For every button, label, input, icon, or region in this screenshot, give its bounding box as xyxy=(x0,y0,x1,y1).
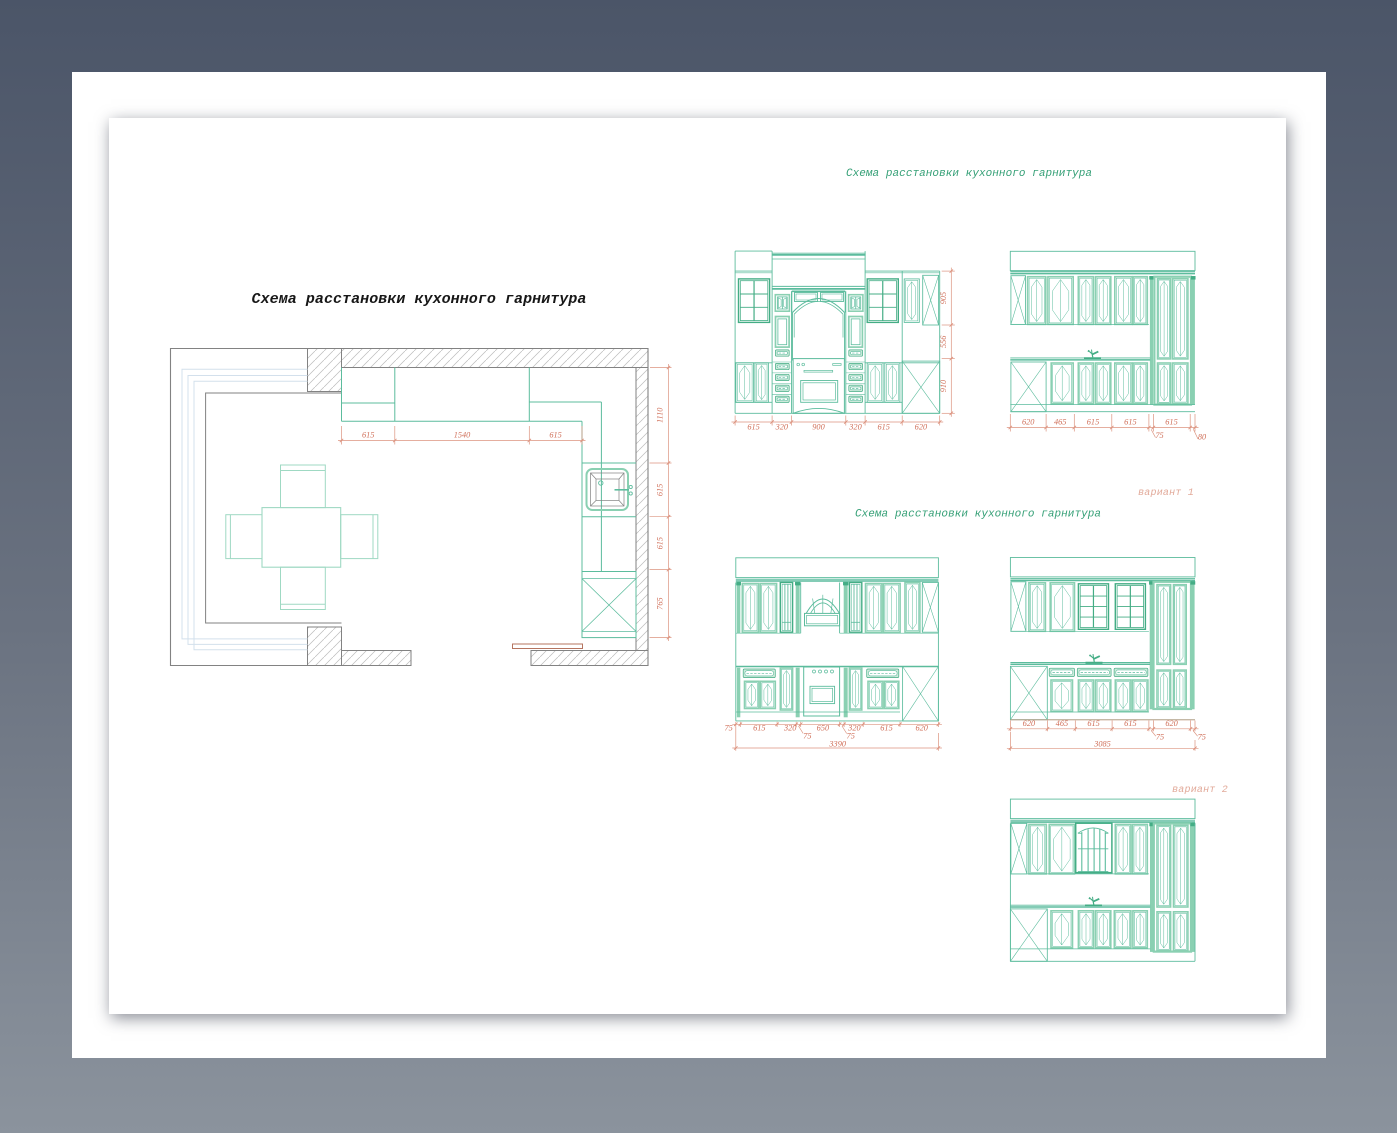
svg-text:615: 615 xyxy=(362,430,374,439)
svg-text:615: 615 xyxy=(880,723,892,732)
svg-text:75: 75 xyxy=(724,723,732,732)
svg-text:620: 620 xyxy=(915,422,928,431)
svg-text:650: 650 xyxy=(817,723,830,732)
svg-text:75: 75 xyxy=(1155,431,1163,440)
svg-text:75: 75 xyxy=(803,732,811,741)
svg-text:615: 615 xyxy=(656,537,665,549)
svg-text:1110: 1110 xyxy=(656,407,665,423)
svg-text:Схема расстановки кухонного га: Схема расстановки кухонного гарнитура xyxy=(855,509,1101,521)
svg-text:905: 905 xyxy=(939,292,948,304)
svg-text:вариант 2: вариант 2 xyxy=(1172,785,1228,796)
svg-text:900: 900 xyxy=(812,422,825,431)
svg-text:620: 620 xyxy=(1165,719,1178,728)
svg-text:75: 75 xyxy=(1156,732,1164,741)
svg-text:3390: 3390 xyxy=(828,740,846,749)
svg-text:80: 80 xyxy=(1198,432,1207,441)
svg-text:615: 615 xyxy=(1165,418,1177,427)
svg-text:465: 465 xyxy=(1056,719,1068,728)
svg-text:3085: 3085 xyxy=(1093,739,1111,748)
svg-text:556: 556 xyxy=(939,335,948,348)
svg-text:615: 615 xyxy=(1087,418,1099,427)
svg-text:1540: 1540 xyxy=(454,430,471,439)
svg-text:320: 320 xyxy=(848,422,862,431)
svg-text:615: 615 xyxy=(1124,719,1136,728)
svg-text:Схема расстановки кухонного га: Схема расстановки кухонного гарнитура xyxy=(846,168,1092,180)
svg-text:615: 615 xyxy=(877,422,889,431)
svg-text:765: 765 xyxy=(656,597,665,609)
svg-text:615: 615 xyxy=(1124,418,1136,427)
svg-text:620: 620 xyxy=(1022,418,1035,427)
svg-text:615: 615 xyxy=(753,723,765,732)
svg-text:вариант 1: вариант 1 xyxy=(1138,488,1194,499)
svg-text:615: 615 xyxy=(1087,719,1099,728)
svg-text:615: 615 xyxy=(656,484,665,496)
svg-text:465: 465 xyxy=(1054,418,1066,427)
svg-text:615: 615 xyxy=(747,422,759,431)
svg-text:615: 615 xyxy=(549,430,561,439)
svg-text:75: 75 xyxy=(847,732,855,741)
svg-text:620: 620 xyxy=(1023,719,1036,728)
svg-text:320: 320 xyxy=(775,422,789,431)
svg-text:Схема расстановки кухонного га: Схема расстановки кухонного гарнитура xyxy=(252,291,587,308)
svg-text:320: 320 xyxy=(783,723,797,732)
svg-text:620: 620 xyxy=(915,723,928,732)
svg-text:75: 75 xyxy=(1198,732,1206,741)
svg-text:910: 910 xyxy=(939,379,948,392)
